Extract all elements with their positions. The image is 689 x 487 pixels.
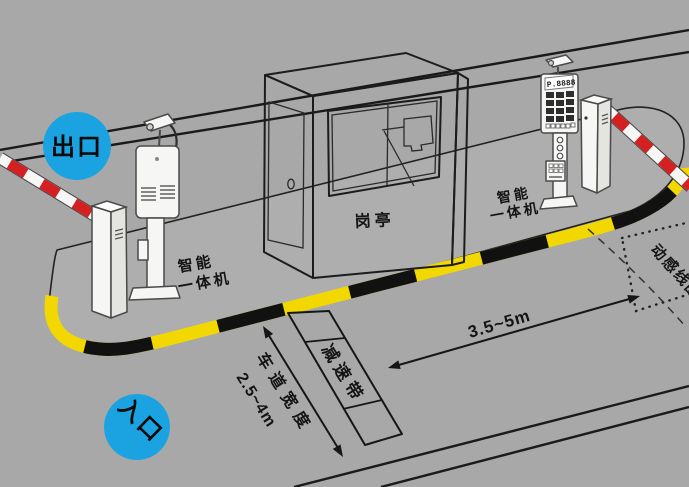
parking-layout-diagram: 动感线圈 减速带 车道宽度 2.5~4m 3.5~5m 岗亭 — [0, 0, 689, 487]
exit-machine-head — [136, 146, 179, 218]
exit-barrier-post-side — [111, 207, 127, 318]
diagram-canvas: 动感线圈 减速带 车道宽度 2.5~4m 3.5~5m 岗亭 — [0, 0, 689, 487]
exit-camera-lens — [147, 124, 153, 130]
exit-machine-pole — [147, 218, 164, 288]
entrance-barrier-post-side — [597, 99, 611, 193]
entrance-barrier-post-button — [584, 116, 587, 119]
entrance-camera-lens — [549, 61, 554, 66]
exit-barrier-post-front — [92, 206, 111, 318]
exit-camera-mount — [159, 130, 160, 147]
entrance-barrier-post-front — [581, 100, 598, 193]
exit-machine-side-box — [138, 240, 148, 260]
booth-label: 岗亭 — [354, 210, 395, 231]
entrance-machine-buttons — [557, 137, 563, 159]
exit-machine-lens-dot — [155, 157, 159, 161]
exit-badge-label: 出口 — [51, 134, 103, 161]
exit-machine-base — [129, 286, 180, 300]
exit-badge: 出口 — [43, 112, 111, 180]
